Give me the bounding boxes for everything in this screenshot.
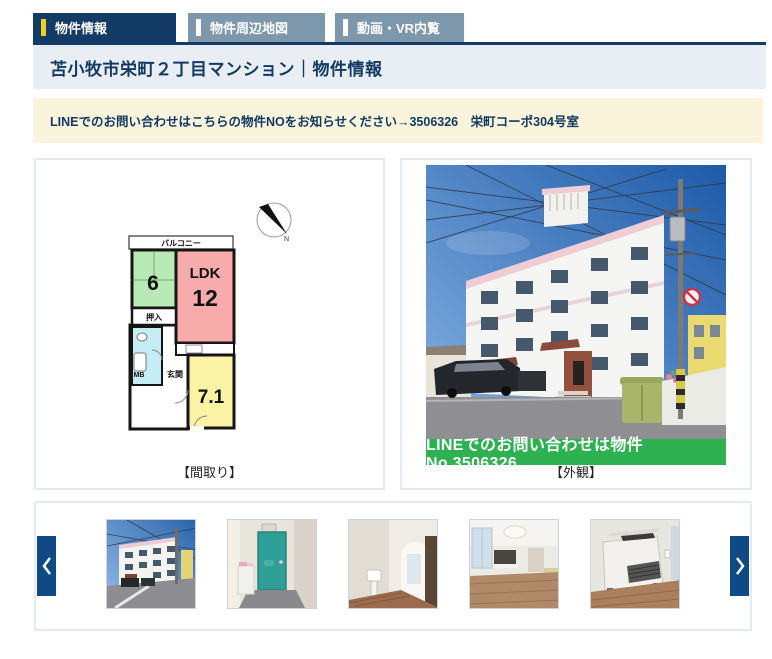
compass-icon: N (257, 203, 291, 243)
svg-text:6: 6 (147, 272, 159, 295)
svg-text:7.1: 7.1 (198, 387, 225, 408)
svg-text:LDK: LDK (190, 265, 221, 282)
tab-property-info[interactable]: 物件情報 (33, 13, 176, 42)
tab-accent-bar (41, 19, 46, 36)
line-notice-bar: LINEでのお問い合わせはこちらの物件NOをお知らせください→3506326 栄… (33, 98, 763, 143)
chevron-right-icon (733, 555, 747, 577)
floorplan-card: N バルコニー 6 LDK 12 押入 (34, 158, 385, 490)
carousel-next-button[interactable] (730, 536, 749, 596)
thumbnail-heater[interactable] (590, 519, 680, 609)
svg-text:玄関: 玄関 (167, 369, 183, 379)
chevron-left-icon (40, 555, 54, 577)
tab-label: 物件周辺地図 (210, 18, 288, 37)
exterior-caption: 【外観】 (402, 462, 750, 481)
svg-text:N: N (284, 236, 289, 243)
tab-bar: 物件情報 物件周辺地図 動画・VR内覧 (33, 13, 464, 42)
exterior-photo: LINEでのお問い合わせは物件No.3506326 (426, 165, 726, 465)
tab-label: 動画・VR内覧 (357, 18, 440, 37)
tab-area-map[interactable]: 物件周辺地図 (188, 13, 325, 42)
svg-text:バルコニー: バルコニー (161, 239, 201, 248)
tab-label: 物件情報 (55, 18, 107, 37)
svg-text:押入: 押入 (146, 312, 162, 322)
tab-accent-bar (196, 19, 201, 36)
svg-text:MB: MB (134, 372, 145, 379)
floorplan-image: N バルコニー 6 LDK 12 押入 (36, 160, 383, 460)
tab-accent-bar (343, 19, 348, 36)
thumbnail-entrance[interactable] (227, 519, 317, 609)
thumbnail-carousel (34, 501, 752, 631)
floorplan-caption: 【間取り】 (36, 462, 383, 481)
property-page: 物件情報 物件周辺地図 動画・VR内覧 苫小牧市栄町２丁目マンション｜物件情報 … (0, 0, 772, 659)
thumbnail-exterior[interactable] (106, 519, 196, 609)
svg-text:12: 12 (192, 285, 218, 311)
carousel-prev-button[interactable] (37, 536, 56, 596)
exterior-card: LINEでのお問い合わせは物件No.3506326 【外観】 (400, 158, 752, 490)
tab-video-vr[interactable]: 動画・VR内覧 (335, 13, 464, 42)
thumbnail-living-room[interactable] (469, 519, 559, 609)
thumbnail-hallway-arch[interactable] (348, 519, 438, 609)
page-title: 苫小牧市栄町２丁目マンション｜物件情報 (33, 45, 766, 89)
